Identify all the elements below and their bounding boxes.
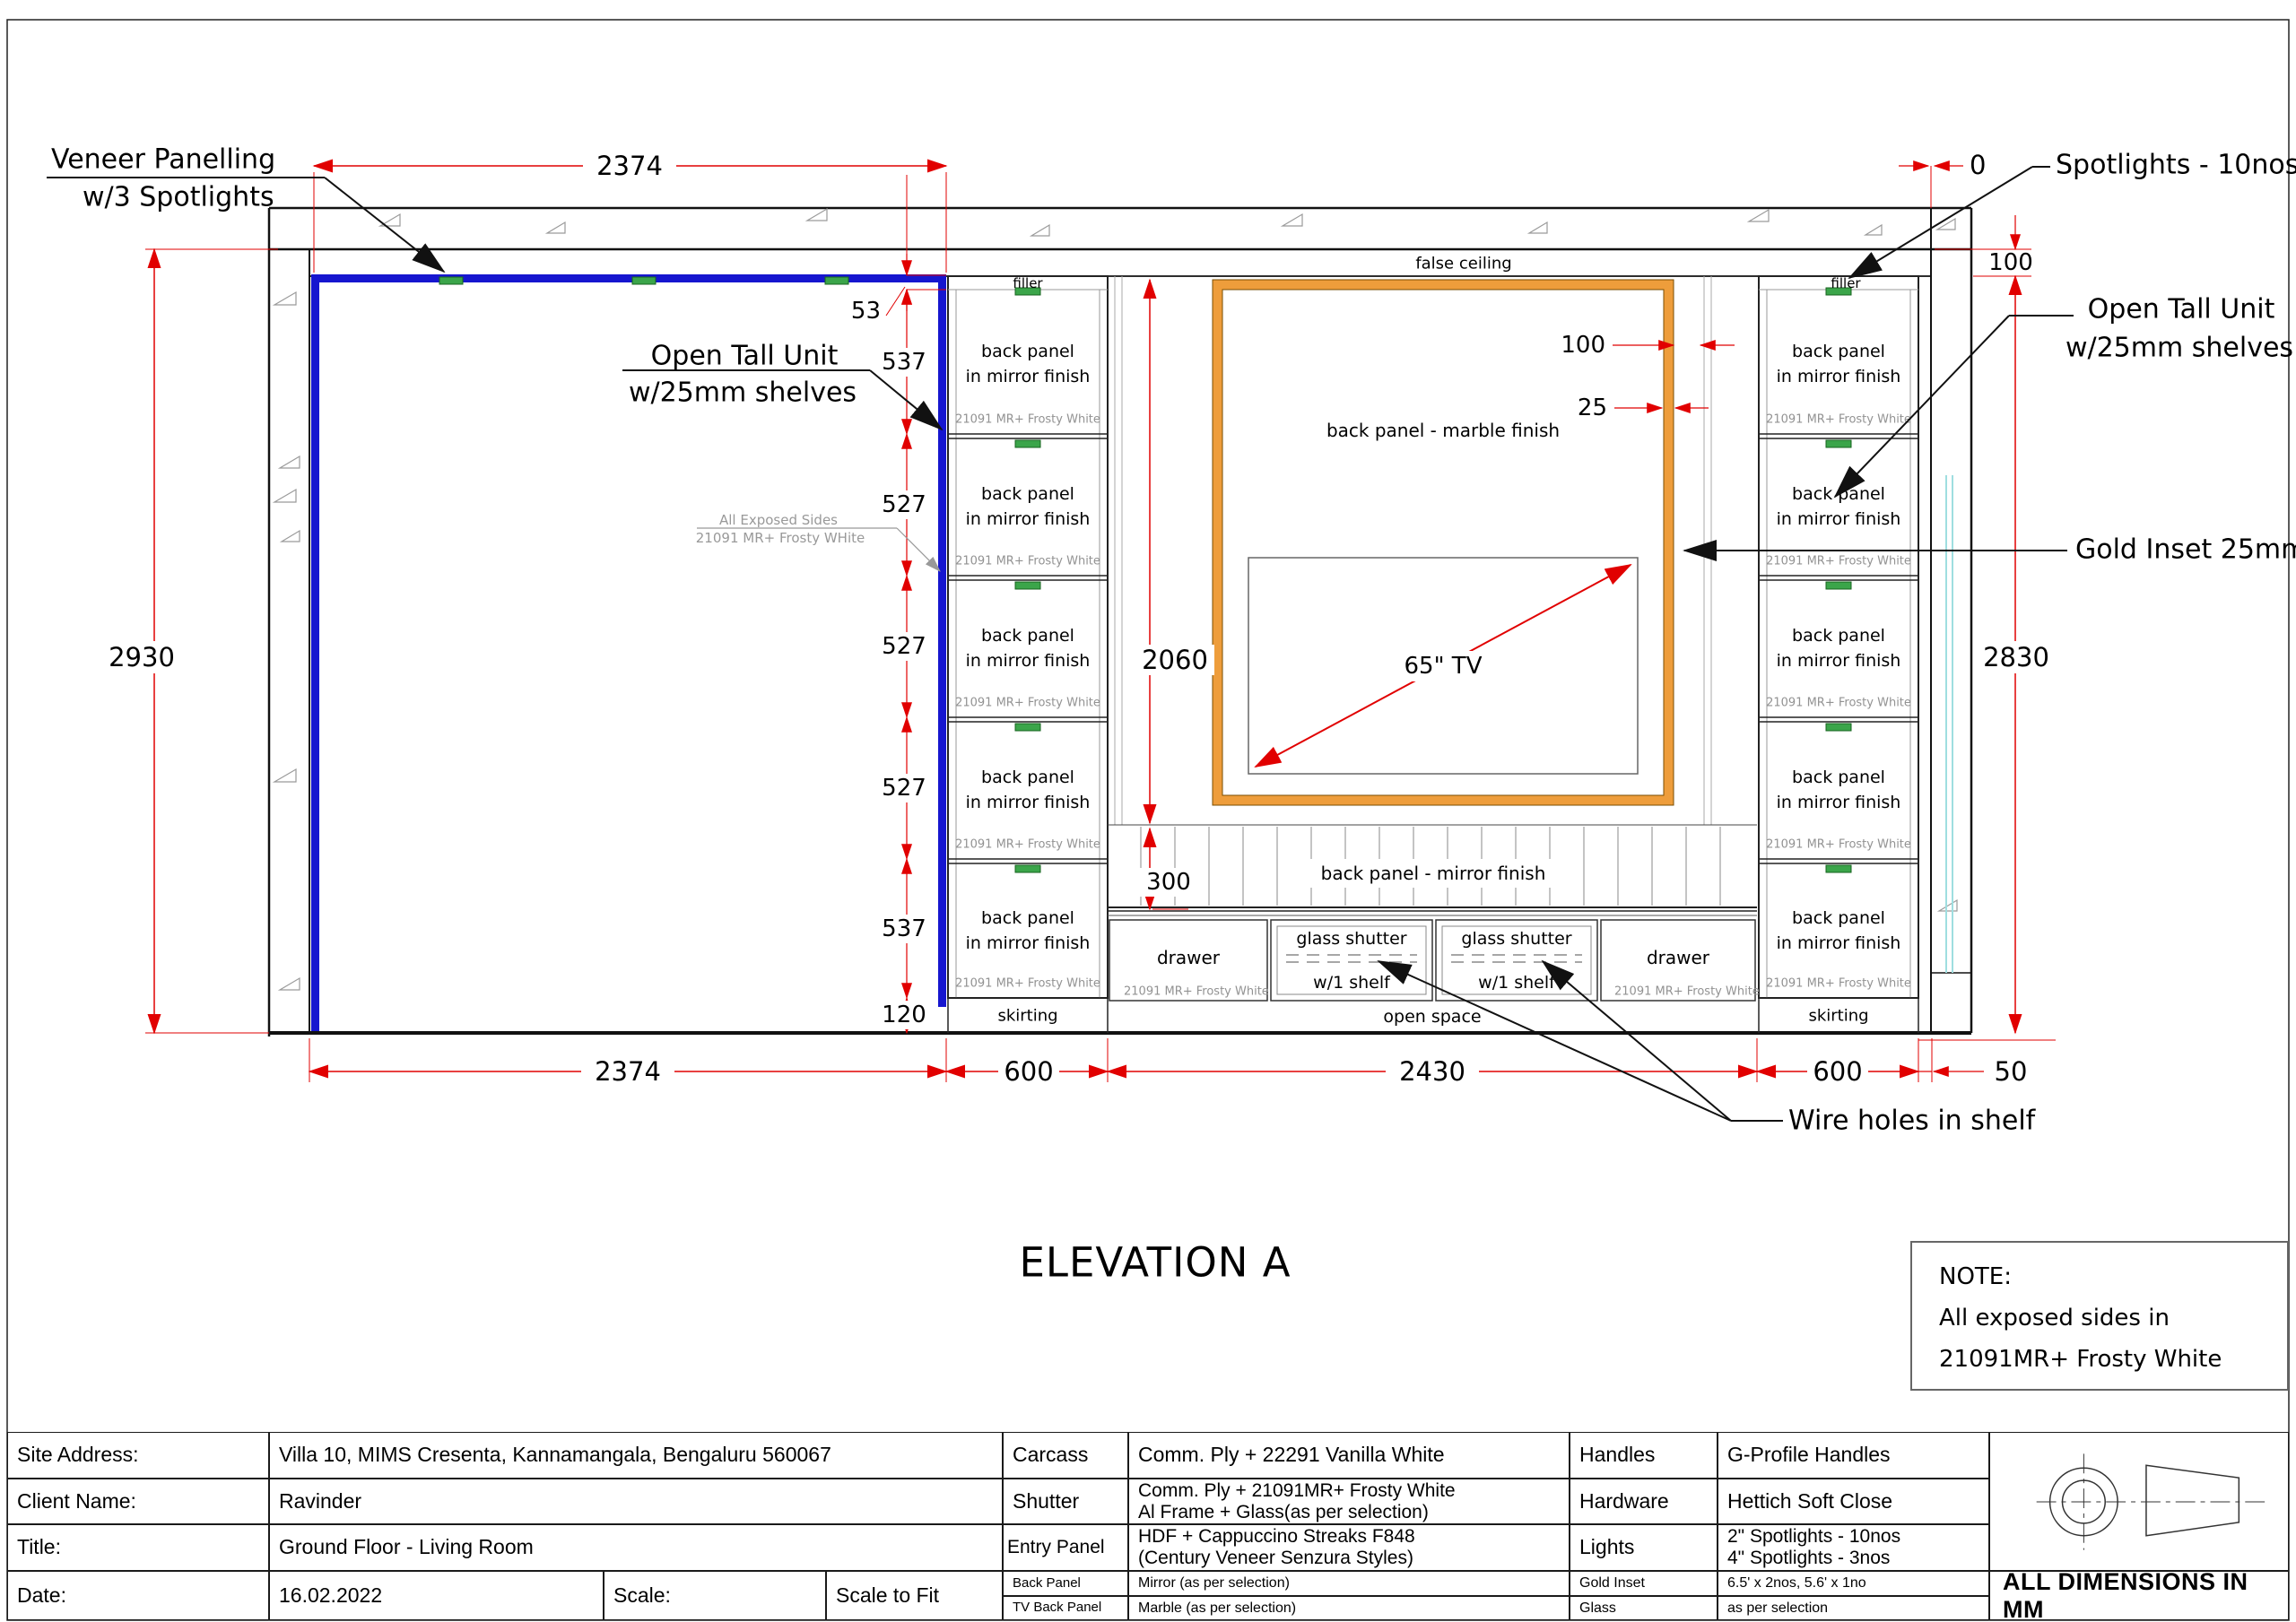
dim-shelf: 527 (882, 633, 926, 660)
dimensions (145, 166, 2056, 1082)
dim-skirting: 120 (882, 1002, 926, 1028)
skirting-label: skirting (1808, 1007, 1868, 1026)
tv-label: 65" TV (1405, 653, 1483, 680)
finish-label: 21091 MR+ Frosty White (1766, 697, 1911, 710)
drawer-label: drawer (1647, 947, 1710, 968)
hardware-label: Hardware (1570, 1479, 1718, 1524)
open-space-label: open space (1383, 1007, 1481, 1027)
dim-mid-height: 2060 (1142, 645, 1208, 675)
drawing-title: ELEVATION A (1019, 1239, 1291, 1287)
carcass-value: Comm. Ply + 22291 Vanilla White (1128, 1432, 1570, 1479)
compartment-label: in mirror finish (966, 651, 1091, 671)
glass-shutter-label: glass shutter (1461, 929, 1571, 949)
shelf-filler-block (1015, 440, 1040, 447)
compartment-label: in mirror finish (1777, 509, 1901, 529)
note-line-2: 21091MR+ Frosty White (1939, 1346, 2222, 1373)
dim-shelf: 537 (882, 915, 926, 942)
compartment-label: back panel (1792, 342, 1885, 361)
dim-left-total: 2930 (109, 642, 175, 672)
client-name-label: Client Name: (7, 1479, 269, 1524)
shelf-filler-block (1015, 865, 1040, 872)
shelf-filler-block (1015, 582, 1040, 589)
handles-value: G-Profile Handles (1718, 1432, 1989, 1479)
right-tall-unit: filler back panel in mirror finish 21091… (1759, 275, 1918, 1033)
spotlights-label: Spotlights - 10nos (2056, 150, 2296, 181)
dim-top-width: 2374 (596, 151, 663, 181)
finish-label: 21091 MR+ Frosty White (955, 555, 1100, 568)
dim-shelf: 527 (882, 775, 926, 802)
shutter-label: Shutter (1003, 1479, 1128, 1524)
shelf-filler-block (1826, 724, 1851, 731)
finish-label: 21091 MR+ Frosty White (955, 977, 1100, 991)
finish-label: 21091 MR+ Frosty White (955, 697, 1100, 710)
exposed-sides-label-1: All Exposed Sides (719, 512, 838, 528)
left-tall-unit: filler back panel in mirror finish 21091… (948, 275, 1108, 1033)
carcass-label: Carcass (1003, 1432, 1128, 1479)
projection-symbol-cell (1989, 1432, 2289, 1571)
date-label: Date: (7, 1571, 269, 1620)
back-panel-label: Back Panel (1003, 1571, 1128, 1596)
drawing-sheet: filler back panel in mirror finish 21091… (0, 0, 2296, 1622)
client-name-value: Ravinder (269, 1479, 1003, 1524)
finish-label: 21091 MR+ Frosty White (1766, 413, 1911, 427)
dim-bottom: 2374 (595, 1056, 661, 1087)
note-heading: NOTE: (1939, 1263, 2012, 1290)
finish-label: 21091 MR+ Frosty White (1614, 985, 1760, 999)
elevation-drawing: filler back panel in mirror finish 21091… (0, 0, 2296, 1622)
veneer-label-2: w/3 Spotlights (83, 182, 274, 213)
finish-label: 21091 MR+ Frosty White (955, 413, 1100, 427)
lights-value: 2" Spotlights - 10nos 4" Spotlights - 3n… (1718, 1524, 1989, 1571)
wire-holes-label: Wire holes in shelf (1788, 1106, 2037, 1137)
entry-panel-value: HDF + Cappuccino Streaks F848 (Century V… (1128, 1524, 1570, 1571)
dim-shelf: 537 (882, 349, 926, 376)
dim-shelf: 527 (882, 491, 926, 518)
drawer-label: drawer (1157, 947, 1221, 968)
shelf-filler-block (1015, 724, 1040, 731)
mirror-panel-label: back panel - mirror finish (1321, 863, 1546, 884)
compartment-label: in mirror finish (1777, 367, 1901, 386)
compartment-label: back panel (1792, 768, 1885, 787)
shelf-filler-block (1826, 582, 1851, 589)
shelf-filler-block (1826, 440, 1851, 447)
filler-label: filler (1013, 275, 1043, 291)
dim-gap-53: 53 (851, 298, 881, 325)
note-box: NOTE: All exposed sides in 21091MR+ Fros… (1911, 1242, 2288, 1390)
veneer-label-1: Veneer Panelling (51, 144, 275, 176)
dim-gold-width: 25 (1578, 395, 1607, 421)
back-panel-value: Mirror (as per selection) (1128, 1571, 1570, 1596)
lights-label: Lights (1570, 1524, 1718, 1571)
dim-mirror-band: 300 (1146, 869, 1191, 896)
open-tall-unit-label-left-1: Open Tall Unit (651, 341, 839, 372)
site-address-value: Villa 10, MIMS Cresenta, Kannamangala, B… (269, 1432, 1003, 1479)
dim-bottom: 600 (1813, 1056, 1862, 1087)
dim-bottom: 600 (1004, 1056, 1053, 1087)
dim-bottom: 2430 (1399, 1056, 1465, 1087)
scale-value: Scale to Fit (826, 1571, 1003, 1620)
finish-label: 21091 MR+ Frosty White (1766, 977, 1911, 991)
wall-structure (269, 208, 1971, 1037)
glass-spec-label: Glass (1570, 1596, 1718, 1620)
dim-right-gap: 100 (1988, 249, 2033, 276)
compartment-label: back panel (981, 768, 1074, 787)
entry-panel-label: Entry Panel (1003, 1524, 1128, 1571)
dim-zero: 0 (1970, 150, 1986, 180)
compartment-label: in mirror finish (966, 933, 1091, 953)
finish-label: 21091 MR+ Frosty White (955, 838, 1100, 852)
site-address-label: Site Address: (7, 1432, 269, 1479)
compartment-label: in mirror finish (966, 367, 1091, 386)
handles-label: Handles (1570, 1432, 1718, 1479)
marble-panel-label: back panel - marble finish (1326, 420, 1560, 441)
scale-label: Scale: (604, 1571, 826, 1620)
spotlight-marker (439, 277, 463, 284)
compartment-label: back panel (981, 626, 1074, 646)
finish-label: 21091 MR+ Frosty White (1124, 985, 1269, 999)
note-line-1: All exposed sides in (1939, 1305, 2170, 1331)
compartment-label: back panel (981, 342, 1074, 361)
concrete-hatch (274, 209, 1957, 990)
open-tall-unit-label-right-1: Open Tall Unit (2088, 294, 2275, 325)
date-value: 16.02.2022 (269, 1571, 604, 1620)
compartment-label: back panel (981, 484, 1074, 504)
title-label: Title: (7, 1524, 269, 1571)
open-tall-unit-label-left-2: w/25mm shelves (629, 377, 857, 409)
false-ceiling-label: false ceiling (1415, 255, 1511, 273)
compartment-label: in mirror finish (1777, 651, 1901, 671)
compartment-label: in mirror finish (1777, 793, 1901, 812)
title-block: Site Address: Villa 10, MIMS Cresenta, K… (7, 1432, 2289, 1620)
title-value: Ground Floor - Living Room (269, 1524, 1003, 1571)
exposed-sides-label-2: 21091 MR+ Frosty WHite (696, 530, 865, 546)
all-dimensions-note: ALL DIMENSIONS IN MM (1989, 1571, 2289, 1620)
glass-shutter-label: glass shutter (1296, 929, 1406, 949)
dim-right-total: 2830 (1983, 642, 2049, 672)
spotlight-marker (825, 277, 848, 284)
compartment-label: back panel (981, 908, 1074, 928)
one-shelf-label: w/1 shelf (1313, 973, 1391, 993)
spotlight-marker (632, 277, 656, 284)
open-tall-unit-label-right-2: w/25mm shelves (2066, 333, 2293, 364)
gold-inset-label: Gold Inset 25mm (2075, 534, 2296, 566)
compartment-label: in mirror finish (966, 509, 1091, 529)
one-shelf-label: w/1 shelf (1478, 973, 1556, 993)
compartment-label: back panel (1792, 908, 1885, 928)
compartment-label: in mirror finish (966, 793, 1091, 812)
gold-inset-spec-label: Gold Inset (1570, 1571, 1718, 1596)
finish-label: 21091 MR+ Frosty White (1766, 838, 1911, 852)
compartment-label: in mirror finish (1777, 933, 1901, 953)
finish-label: 21091 MR+ Frosty White (1766, 555, 1911, 568)
compartment-label: back panel (1792, 626, 1885, 646)
tv-back-panel-label: TV Back Panel (1003, 1596, 1128, 1620)
skirting-label: skirting (997, 1007, 1057, 1026)
hardware-value: Hettich Soft Close (1718, 1479, 1989, 1524)
gold-inset-spec-value: 6.5' x 2nos, 5.6' x 1no (1718, 1571, 1989, 1596)
glass-spec-value: as per selection (1718, 1596, 1989, 1620)
filler-label: filler (1831, 275, 1861, 291)
shutter-value: Comm. Ply + 21091MR+ Frosty White Al Fra… (1128, 1479, 1570, 1524)
shelf-filler-block (1826, 865, 1851, 872)
tv-back-panel-value: Marble (as per selection) (1128, 1596, 1570, 1620)
dim-gold-gap: 100 (1561, 332, 1605, 359)
dim-bottom: 50 (1995, 1056, 2028, 1087)
projection-symbol (1990, 1432, 2288, 1571)
